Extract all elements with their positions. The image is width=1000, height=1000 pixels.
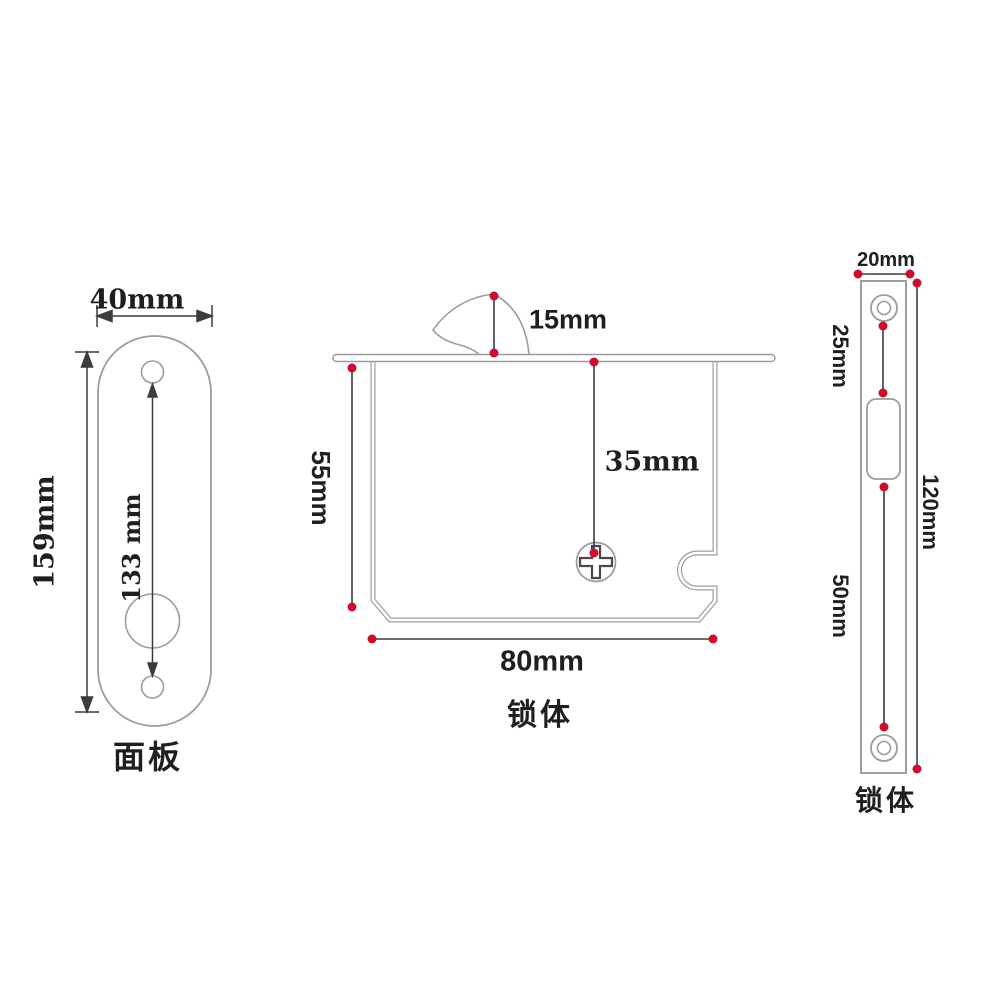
faceplate-part-name: 面板	[113, 741, 183, 773]
dim-159mm-arrow-up	[82, 352, 93, 367]
lock-body-drawing	[333, 294, 775, 620]
strike-plate-total-height-dim-label: 120mm	[919, 474, 941, 550]
faceplate-hole-spacing-dim-label: 133 mm	[120, 493, 144, 602]
lock-body-top-plate	[333, 355, 775, 362]
faceplate-height-dim-label: 159mm	[32, 475, 59, 589]
dot	[490, 292, 499, 301]
lock-body-screw-offset-dim-label: 35mm	[605, 449, 700, 476]
dot	[590, 358, 599, 367]
dot	[709, 635, 718, 644]
strike-plate-bottom-section-dim-label: 50mm	[829, 574, 851, 638]
dot	[490, 349, 499, 358]
dim-159mm-arrow-down	[82, 697, 93, 712]
strike-latch-cutout	[867, 399, 900, 479]
faceplate-bottom-screw-hole	[142, 676, 164, 698]
dot	[879, 389, 888, 398]
strike-plate-dimension-lines	[858, 274, 917, 769]
strike-bottom-hole-outer	[871, 735, 897, 761]
strike-top-hole-outer	[871, 295, 897, 321]
dot	[348, 364, 357, 373]
lock-body-outline-inner	[373, 361, 715, 620]
strike-plate-dimension-dots	[854, 270, 922, 774]
strike-plate-top-section-dim-label: 25mm	[829, 324, 851, 388]
lock-body-hook-height-dim-label: 15mm	[529, 307, 607, 334]
diagram-linework	[0, 0, 1000, 1000]
strike-plate-part-name: 锁体	[855, 787, 917, 815]
dot	[913, 765, 922, 774]
lock-body-part-name: 锁体	[507, 701, 573, 731]
dot	[590, 549, 599, 558]
dot	[348, 603, 357, 612]
lock-dimension-diagram-page: 40mm 159mm 133 mm 面板 15mm 55mm 35mm 80mm…	[0, 0, 1000, 1000]
strike-bottom-hole-inner	[878, 742, 891, 755]
dim-133mm-arrow-down	[148, 663, 157, 676]
dot	[879, 322, 888, 331]
dot	[880, 723, 889, 732]
dot	[368, 635, 377, 644]
lock-body-height-dim-label: 55mm	[308, 450, 334, 525]
dim-133mm-arrow-up	[148, 384, 157, 397]
lock-body-width-dim-label: 80mm	[500, 648, 584, 677]
strike-top-hole-inner	[878, 302, 891, 315]
faceplate-top-screw-hole	[142, 361, 164, 383]
lock-body-outline-outer	[373, 361, 715, 620]
dim-40mm-arrow-right	[197, 311, 212, 322]
dot	[913, 279, 922, 288]
strike-plate-width-dim-label: 20mm	[857, 250, 915, 270]
dot	[880, 483, 889, 492]
faceplate-width-dim-label: 40mm	[90, 287, 185, 314]
latch-hook	[433, 294, 529, 354]
